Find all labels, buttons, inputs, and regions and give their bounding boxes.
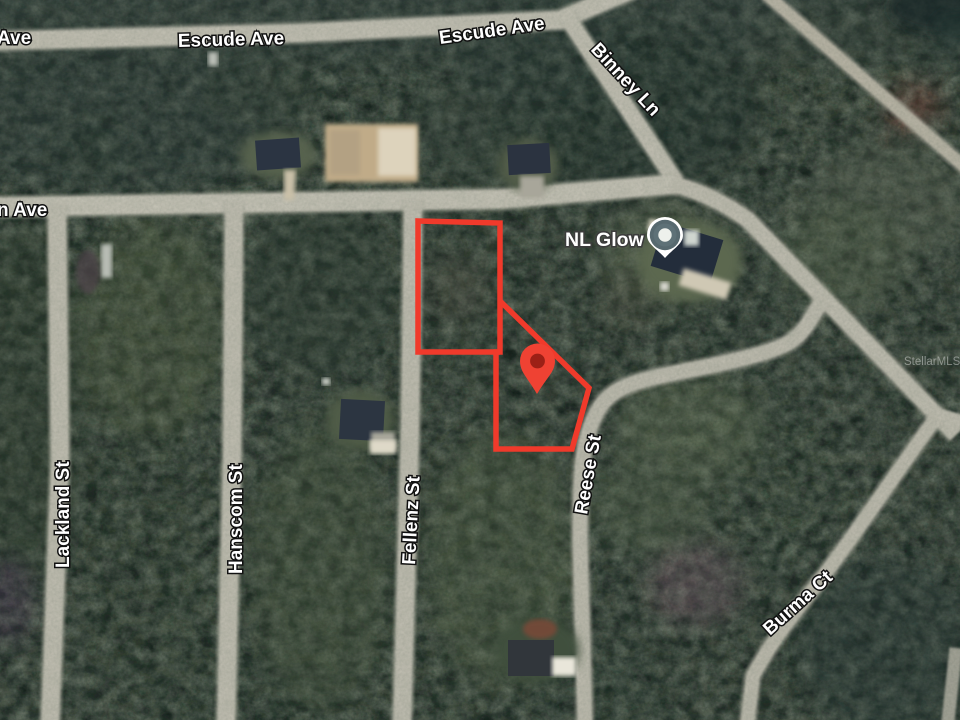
svg-text:n Ave: n Ave [0, 200, 47, 221]
svg-text:StellarMLS: StellarMLS [904, 356, 960, 368]
svg-text:Escude Ave: Escude Ave [178, 28, 285, 52]
svg-text:Ave: Ave [0, 28, 31, 49]
svg-text:Hanscom St: Hanscom St [226, 464, 247, 574]
svg-text:Lackland St: Lackland St [53, 461, 74, 568]
svg-text:NL Glow: NL Glow [565, 229, 645, 251]
